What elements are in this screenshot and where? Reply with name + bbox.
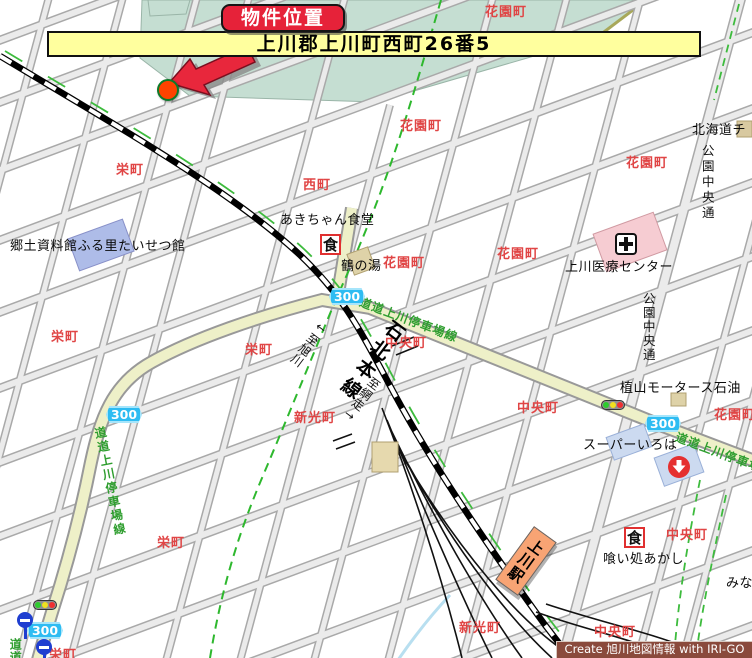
road-label-teishajo-line-4: 道道 (8, 638, 21, 658)
road-sign-icon-1 (17, 612, 33, 639)
road-sign-icon-2 (36, 639, 52, 658)
street-label-koen-chuo-2: 公園中央通 (641, 292, 655, 372)
town-label-hanazono-6: 花園町 (714, 409, 752, 423)
town-label-hanazono-4: 花園町 (497, 248, 539, 262)
street-label-koen-chuo-1: 公園中央通 (700, 144, 714, 234)
hospital-icon (615, 233, 637, 255)
map-credit: Create 旭川地図情報 with IRI-GO (556, 641, 752, 658)
town-label-hanazono-1: 花園町 (485, 6, 527, 20)
facility-label-hokkaido: 北海道チ (692, 124, 746, 138)
facility-label-akichan-restaurant: あきちゃん食堂 (280, 214, 375, 228)
park-square (148, 0, 190, 16)
station-building (372, 442, 398, 472)
facility-label-tsurunoyu: 鶴の湯 (341, 260, 382, 274)
traffic-light-icon-1 (601, 400, 625, 410)
town-label-chuo-2: 中央町 (517, 402, 559, 416)
restaurant-icon-2: 食 (624, 527, 645, 548)
traffic-light-icon-2 (33, 600, 57, 610)
facility-label-akashi-restaurant: 喰い処あかし (603, 553, 684, 567)
route-300-badge-2: 300 (645, 415, 681, 432)
facility-label-ueyama-motors: 植山モータース石油 (620, 382, 741, 396)
route-300-badge-3: 300 (106, 406, 142, 423)
facility-label-museum: 郷土資料館ふる里たいせつ館 (10, 240, 186, 254)
facility-label-medical-center: 上川医療センター (565, 261, 673, 275)
restaurant-icon-1: 食 (320, 234, 341, 255)
town-label-hanazono-5: 花園町 (383, 257, 425, 271)
town-label-sakaemachi-3: 栄町 (245, 344, 273, 358)
town-label-chuo-4: 中央町 (594, 626, 636, 640)
town-label-sakaemachi-2: 栄町 (51, 331, 79, 345)
route-300-badge-1: 300 (329, 288, 365, 305)
facility-label-super-iroha: スーパーいろは (583, 439, 677, 453)
address-banner: 上川郡上川町西町26番5 (47, 31, 701, 57)
store-down-arrow-icon (668, 456, 690, 478)
town-label-hanazono-2: 花園町 (400, 120, 442, 134)
town-label-shinko-2: 新光町 (459, 622, 501, 636)
town-label-shinko-1: 新光町 (294, 412, 336, 426)
property-location-marker (157, 79, 179, 101)
facility-label-mina: みな (726, 577, 752, 591)
property-position-badge: 物件位置 (221, 4, 345, 32)
town-label-sakaemachi-5: 栄町 (49, 649, 77, 658)
town-label-hanazono-3: 花園町 (626, 157, 668, 171)
town-label-chuo-3: 中央町 (666, 529, 708, 543)
town-label-sakaemachi-1: 栄町 (116, 164, 144, 178)
map-canvas: 花園町 花園町 花園町 栄町 西町 花園町 花園町 栄町 栄町 中央町 中央町 … (0, 0, 752, 658)
town-label-nishimachi: 西町 (303, 179, 331, 193)
town-label-sakaemachi-4: 栄町 (157, 537, 185, 551)
